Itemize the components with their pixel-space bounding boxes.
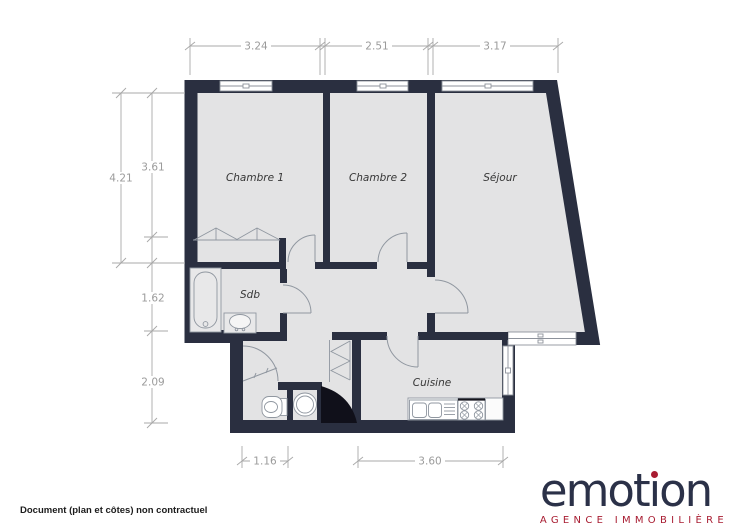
bathtub	[190, 268, 221, 332]
dim-left-2: 1.62	[141, 293, 164, 305]
dimension-top: 3.24 2.51 3.17	[185, 38, 563, 75]
exterior-walls	[191, 87, 593, 427]
dimension-left: 4.21 3.61 1.62 2.09	[106, 88, 185, 428]
kitchen-counter	[408, 398, 503, 420]
room-label-sejour: Séjour	[483, 172, 517, 184]
washing-machine	[294, 393, 317, 416]
washbasin	[224, 313, 256, 333]
dim-top-1: 3.24	[244, 41, 268, 53]
dim-top-3: 3.17	[483, 41, 506, 53]
window-chambre1	[220, 81, 272, 91]
brand-logo: emotıon AGENCE IMMOBILIÈRE	[540, 468, 728, 526]
room-label-sdb: Sdb	[240, 289, 260, 301]
brand-name-pre: emot	[540, 464, 649, 517]
dim-left-outer: 4.21	[109, 173, 132, 185]
dim-left-1: 3.61	[141, 162, 164, 174]
footer-disclaimer: Document (plan et côtes) non contractuel	[20, 505, 207, 516]
kitchen-sink	[410, 400, 458, 420]
brand-name: emotıon	[540, 468, 728, 513]
toilet	[262, 397, 287, 418]
room-label-cuisine: Cuisine	[413, 377, 451, 389]
window-sejour	[442, 81, 533, 91]
window-chambre2	[357, 81, 408, 91]
brand-name-post: on	[659, 464, 711, 517]
room-label-chambre1: Chambre 1	[226, 172, 284, 184]
room-label-chambre2: Chambre 2	[349, 172, 407, 184]
window-cuisine-east	[503, 346, 513, 395]
dim-bottom-2: 3.60	[418, 456, 441, 468]
dim-left-3: 2.09	[141, 377, 164, 389]
window-sejour-south	[508, 332, 576, 345]
brand-tagline: AGENCE IMMOBILIÈRE	[540, 516, 728, 526]
floorplan-document: Chambre 1 Chambre 2 Séjour Sdb Cuisine 3…	[0, 0, 750, 532]
dimension-bottom: 1.16 3.60	[237, 446, 508, 468]
floorplan-drawing: Chambre 1 Chambre 2 Séjour Sdb Cuisine 3…	[0, 0, 750, 532]
dim-top-2: 2.51	[365, 41, 388, 53]
stove	[458, 399, 485, 420]
brand-name-i: ı	[649, 468, 660, 513]
dim-bottom-1: 1.16	[253, 456, 277, 468]
